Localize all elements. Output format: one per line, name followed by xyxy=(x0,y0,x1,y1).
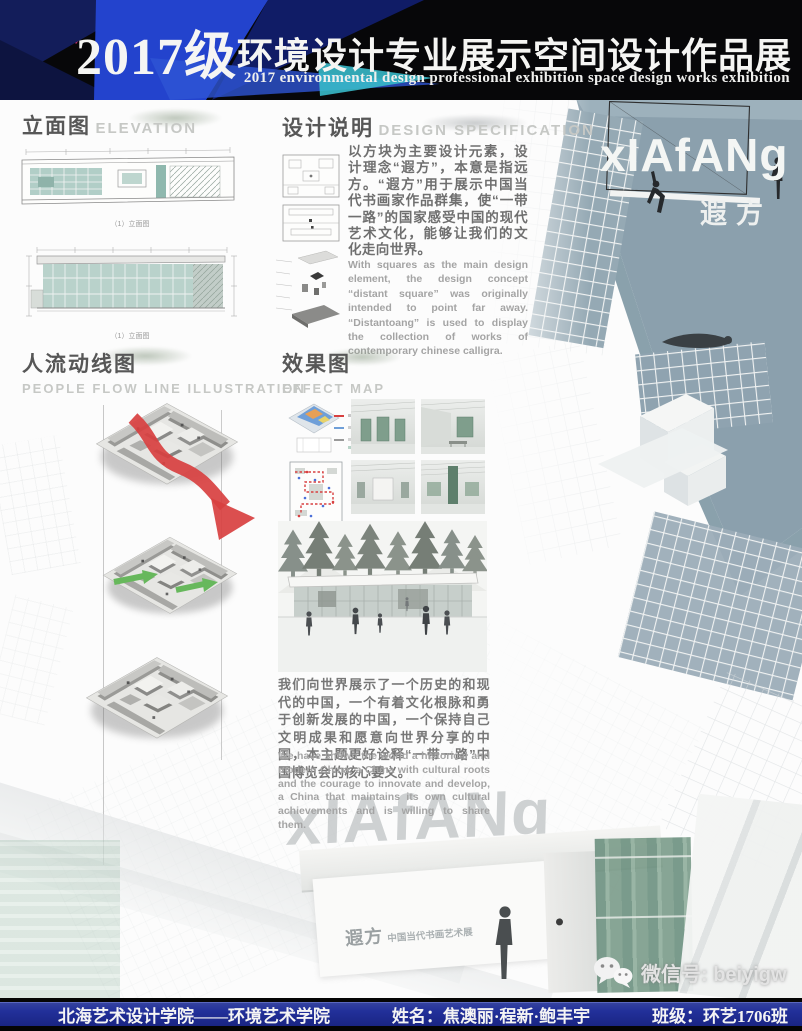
elevation-title-en: ELEVATION xyxy=(95,120,197,137)
exploded-axon-figure xyxy=(276,248,342,330)
wechat-badge: 微信号: beiyigw xyxy=(592,955,787,989)
effect-title-cn: 效果图 xyxy=(282,348,385,378)
wall-sign-title: 遐方 xyxy=(345,926,384,949)
section-flow-title: 人流动线图 PEOPLE FLOW LINE ILLUSTRATION xyxy=(22,348,306,396)
plan-figure-2 xyxy=(281,203,341,243)
render-thumb-4 xyxy=(421,460,485,514)
green-glass-left xyxy=(0,840,120,998)
wechat-icon xyxy=(592,955,634,989)
footer-bar: 北海艺术设计学院——环境艺术学院 姓名：焦澳丽·程新·鲍丰宇 班级：环艺1706… xyxy=(0,998,802,1031)
designspec-title-cn: 设计说明 xyxy=(282,117,374,140)
door-handle xyxy=(556,918,563,925)
section-designspec-title: 设计说明 DESIGN SPECIFICATION xyxy=(282,112,595,142)
faded-wireframe xyxy=(0,435,81,575)
logo-xiafang-cn: 遐方 xyxy=(700,192,772,231)
footer-school: 北海艺术设计学院——环境艺术学院 xyxy=(58,1002,330,1027)
render-thumb-grid xyxy=(351,399,487,514)
drawing-caption: （1）立面图 xyxy=(60,331,200,341)
glass-mullion xyxy=(596,915,692,919)
flow-title-cn: 人流动线图 xyxy=(22,348,306,378)
effect-diagram-plan xyxy=(285,458,347,528)
effect-title-en: EFFECT MAP xyxy=(282,381,385,396)
flow-arrows-green xyxy=(100,560,250,604)
elevation-title-cn: 立面图 xyxy=(22,115,91,138)
flow-diagram-3 xyxy=(78,652,236,762)
visitor-silhouette xyxy=(494,905,516,981)
footer-inner: 北海艺术设计学院——环境艺术学院 姓名：焦澳丽·程新·鲍丰宇 班级：环艺1706… xyxy=(0,1002,802,1026)
logo-xiafang-en: xIAfANg xyxy=(600,128,788,182)
render-thumb-1 xyxy=(351,399,415,454)
plan-figure-1 xyxy=(281,153,341,199)
wall-sign-subtitle: 中国当代书画艺术展 xyxy=(387,927,473,945)
flow-arrow-red xyxy=(95,400,265,550)
drawing-caption: （1）立面图 xyxy=(60,219,200,229)
effect-paragraph-en: We have shown the world a historical and… xyxy=(278,750,490,833)
footer-names: 姓名：焦澳丽·程新·鲍丰宇 xyxy=(392,1002,590,1027)
wall-sign: 遐方中国当代书画艺术展 xyxy=(344,915,473,951)
glass-mullion xyxy=(595,855,691,859)
main-render xyxy=(278,521,487,672)
flow-title-en: PEOPLE FLOW LINE ILLUSTRATION xyxy=(22,381,306,396)
footer-class: 班级：环艺1706班 xyxy=(652,1002,788,1027)
render-thumb-3 xyxy=(351,460,415,514)
spec-paragraph-en: With squares as the main design element,… xyxy=(348,258,528,359)
elevation-drawing-1 xyxy=(18,144,238,216)
faded-wireframe xyxy=(0,595,74,726)
spec-paragraph-cn: 以方块为主要设计元素，设计理念“遐方”，本意是指远方。“遐方”用于展示中国当代书… xyxy=(348,144,528,259)
section-elevation-title: 立面图 ELEVATION xyxy=(22,110,197,140)
header-banner: 2017级环境设计专业展示空间设计作品展 2017 environmental … xyxy=(0,0,802,100)
section-effect-title: 效果图 EFFECT MAP xyxy=(282,348,385,396)
page-subtitle: 2017 environmental design professional e… xyxy=(244,70,790,87)
wechat-label: 微信号: beiyigw xyxy=(641,958,787,987)
title-year: 2017级 xyxy=(76,29,237,86)
render-thumb-2 xyxy=(421,399,485,454)
designspec-title-en: DESIGN SPECIFICATION xyxy=(378,122,594,139)
poster-canvas: xIAfANg 遐方 2017级环境设计专业展示空间设计作品展 2017 env… xyxy=(0,0,802,1031)
elevation-drawing-2 xyxy=(23,244,240,328)
